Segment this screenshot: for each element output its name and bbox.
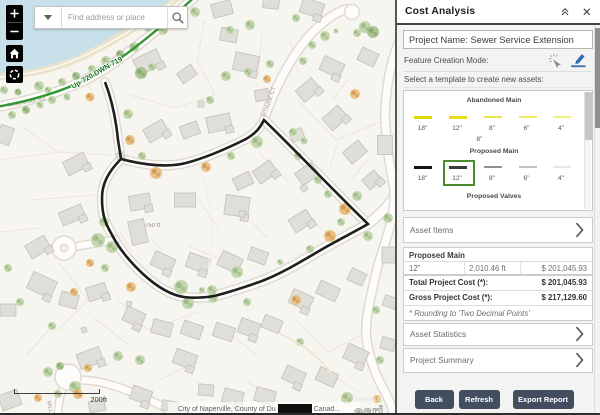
svg-text:750 ft: 750 ft bbox=[145, 223, 160, 229]
